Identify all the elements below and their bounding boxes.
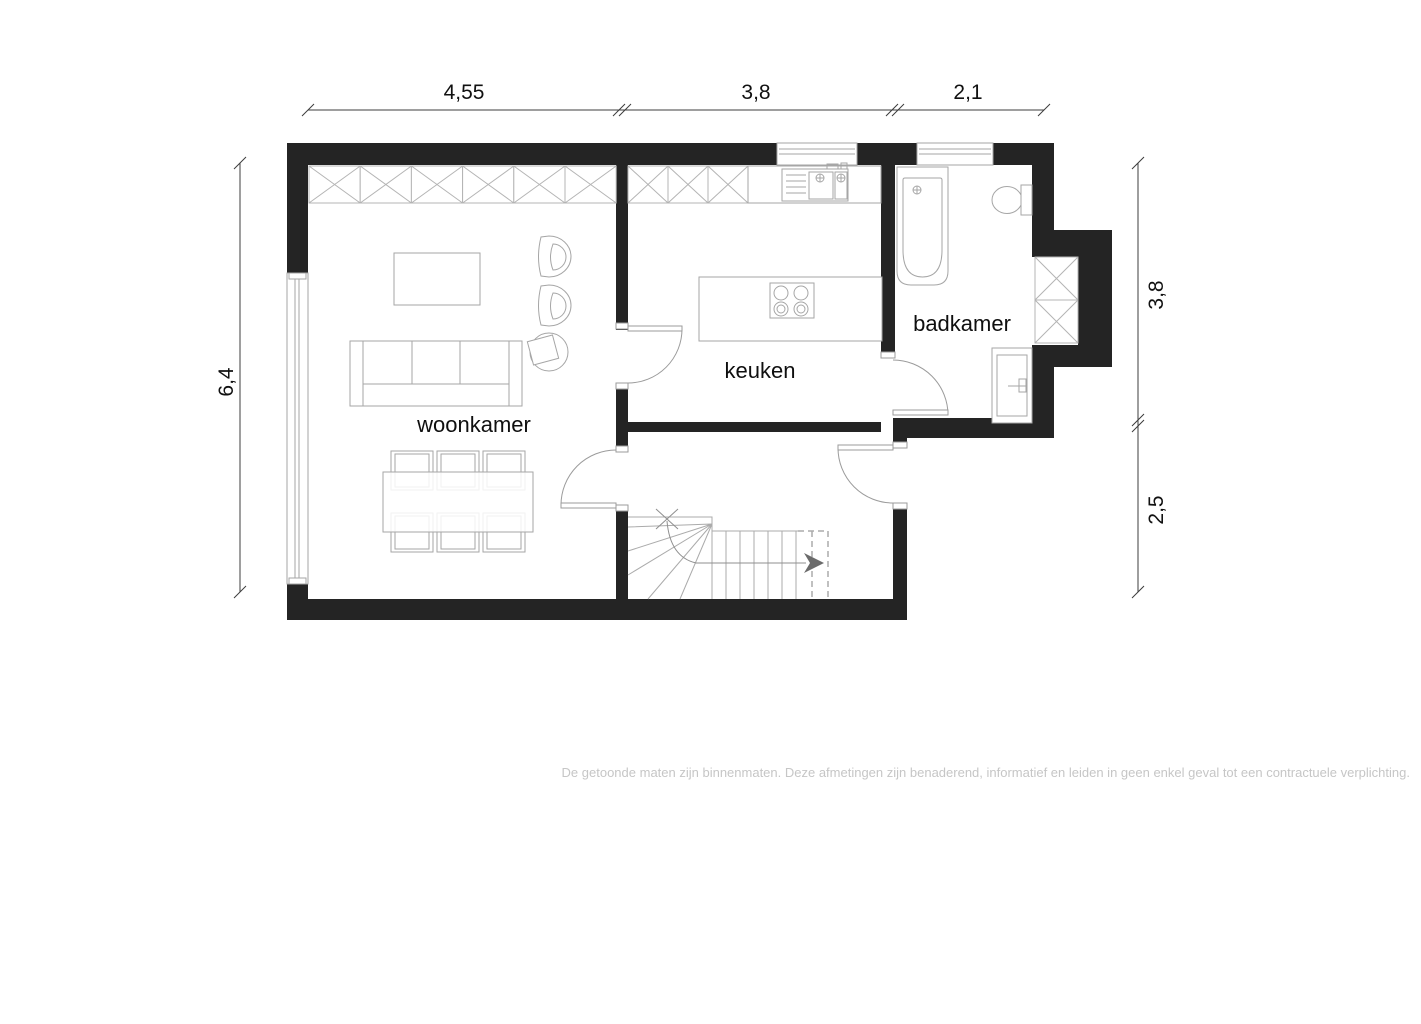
kitchen-island — [699, 277, 882, 341]
floorplan-drawing: woonkamer keuken badkamer 4,55 3,8 2,1 6… — [0, 0, 1421, 1024]
side-chair — [527, 333, 568, 371]
wall-left-a — [287, 143, 308, 273]
bathroom-cabinet-door-panel — [992, 348, 1032, 423]
wall-notch-bottom — [1032, 345, 1112, 367]
dim-right-1: 3,8 — [1145, 280, 1168, 309]
walls — [287, 143, 1112, 620]
stair-up-arrow-icon — [804, 553, 824, 573]
bathtub-icon — [897, 167, 948, 285]
wall-living-hall-lower — [616, 505, 628, 599]
wall-living-kitchen-mid — [616, 388, 628, 452]
door-living-to-kitchen — [616, 323, 682, 389]
armchair — [539, 285, 572, 326]
wall-top-b — [857, 143, 917, 165]
cupboard-box — [309, 166, 748, 203]
door-hall-to-living — [561, 446, 628, 511]
disclaimer-text: De getoonde maten zijn binnenmaten. Deze… — [562, 765, 1410, 780]
wall-top-a — [287, 143, 777, 165]
door-kitchen-to-bathroom — [881, 352, 948, 415]
window-top-kitchen — [777, 143, 857, 165]
bathroom-hatched-cabinet — [1035, 257, 1078, 343]
dimension-top: 4,55 3,8 2,1 — [302, 81, 1050, 116]
window-top-bathroom — [917, 143, 993, 165]
dimension-left: 6,4 — [215, 157, 246, 598]
dim-top-2: 3,8 — [741, 81, 770, 104]
wall-bottom — [287, 599, 907, 620]
built-in-cupboards — [309, 166, 748, 203]
floorplan-page: woonkamer keuken badkamer 4,55 3,8 2,1 6… — [0, 0, 1421, 1024]
wall-right-upper — [1032, 143, 1054, 235]
dim-top-1: 4,55 — [444, 81, 485, 104]
coffee-table — [394, 253, 480, 305]
kitchen-counter — [748, 163, 881, 203]
living-room-furniture — [350, 236, 571, 552]
toilet-icon — [992, 185, 1032, 215]
dining-set — [383, 451, 533, 552]
dim-top-3: 2,1 — [953, 81, 982, 104]
sofa — [350, 341, 522, 406]
room-label-woonkamer: woonkamer — [416, 412, 531, 437]
wall-kitchen-hall — [628, 422, 881, 432]
dimension-right: 3,8 2,5 — [1132, 157, 1168, 598]
wall-living-kitchen-upper — [616, 165, 628, 330]
armchair — [539, 236, 572, 277]
room-label-keuken: keuken — [725, 358, 796, 383]
dim-left-1: 6,4 — [215, 367, 238, 397]
wall-hall-right — [893, 503, 907, 599]
dim-right-2: 2,5 — [1145, 495, 1168, 524]
staircase — [628, 509, 828, 599]
room-label-badkamer: badkamer — [913, 311, 1011, 336]
dining-table — [383, 472, 533, 532]
door-hall-exterior — [838, 442, 907, 509]
wall-kitchen-bath — [881, 165, 895, 358]
window-left-living — [287, 273, 308, 584]
